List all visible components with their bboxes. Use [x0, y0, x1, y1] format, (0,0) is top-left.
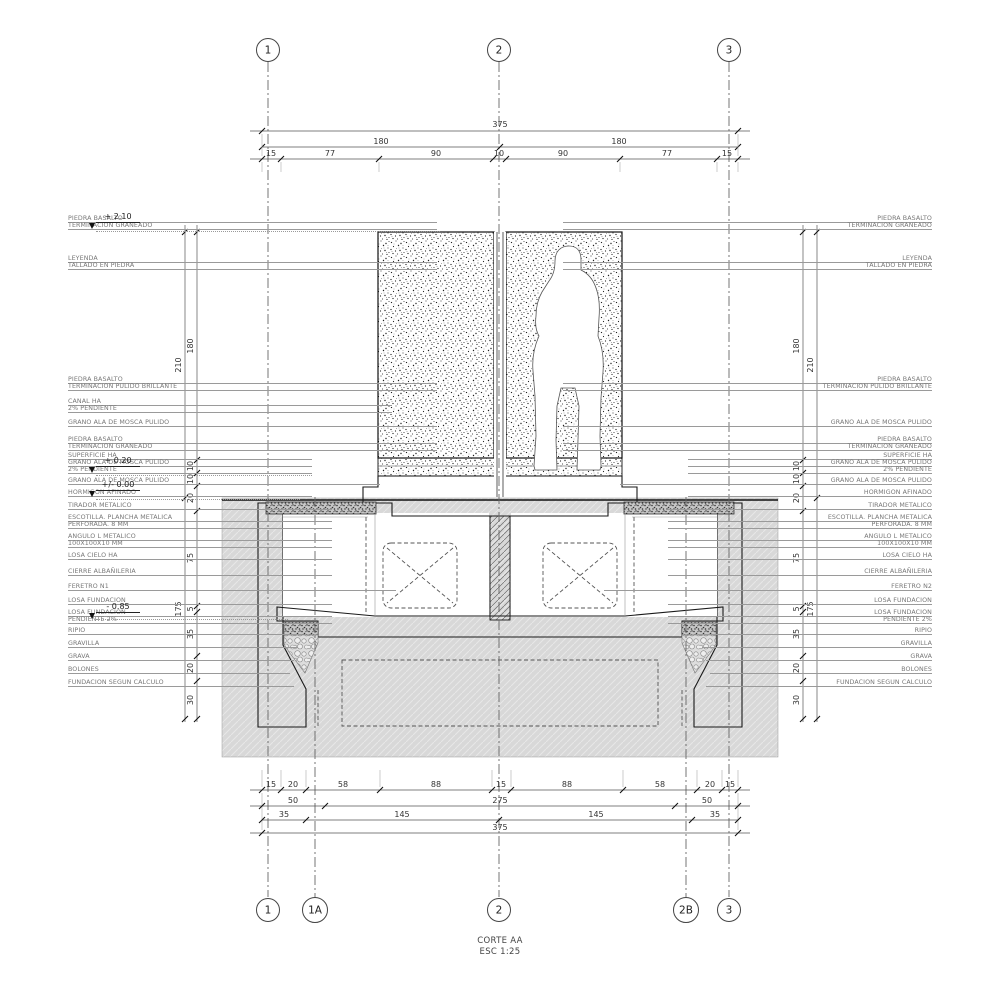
svg-text:15: 15 [722, 149, 732, 158]
grid-bubble-bottom-2B: 2B [674, 898, 699, 923]
material-label: 100X100X10 MM [668, 540, 932, 548]
svg-text:1A: 1A [308, 905, 323, 917]
material-label: FERETRO N1 [68, 583, 396, 591]
material-label: LOSA FUNDACION [668, 597, 932, 605]
svg-text:88: 88 [562, 780, 572, 789]
elevation-leader [96, 470, 312, 476]
material-label: TERMINACION PULIDO BRILLANTE [68, 383, 437, 391]
grid-bubble-bottom-3: 3 [718, 899, 741, 922]
svg-text:CORTE AA: CORTE AA [477, 936, 522, 946]
material-label: GRANO ALA DE MOSCA PULIDO [563, 419, 932, 427]
material-label: PERFORADA. 8 MM [68, 521, 332, 529]
svg-text:30: 30 [186, 695, 195, 705]
material-label: RIPIO [68, 627, 302, 635]
elevation-label: + 0.20 [96, 456, 140, 467]
svg-text:88: 88 [431, 780, 441, 789]
svg-text:275: 275 [492, 796, 507, 805]
material-label: PENDIENTE 2% [668, 616, 932, 624]
material-label: CIERRE ALBAÑILERIA [68, 568, 332, 576]
material-label: TERMINACION PULIDO BRILLANTE [563, 383, 932, 391]
grid-bubble-top-3: 3 [718, 39, 741, 62]
elevation-marker-icon [89, 467, 95, 473]
material-label: TIRADOR METALICO [68, 502, 332, 510]
material-label: TERMINACION GRANEADO [563, 443, 932, 451]
material-label: TERMINACION GRANEADO [563, 222, 932, 230]
elevation-marker-icon [89, 223, 95, 229]
material-label: TERMINACION GRANEADO [68, 443, 437, 451]
svg-text:145: 145 [588, 810, 603, 819]
material-label: FUNDACION SEGUN CALCULO [706, 679, 932, 687]
svg-text:2: 2 [496, 45, 503, 57]
svg-text:180: 180 [611, 137, 626, 146]
svg-text:15: 15 [496, 780, 506, 789]
svg-text:3: 3 [726, 45, 733, 57]
material-label: FERETRO N2 [604, 583, 932, 591]
elevation-leader [96, 614, 288, 620]
svg-text:35: 35 [279, 810, 289, 819]
svg-text:77: 77 [662, 149, 672, 158]
material-label: LOSA CIELO HA [68, 552, 332, 560]
material-label: 2% PENDIENTE [688, 466, 932, 474]
svg-text:180: 180 [186, 338, 195, 353]
svg-text:15: 15 [266, 149, 276, 158]
elevation-leader [96, 226, 440, 232]
svg-text:3: 3 [726, 905, 733, 917]
grid-bubble-top-1: 1 [257, 39, 280, 62]
dimension-top: 375 180 180 15 77 90 10 90 77 15 [250, 120, 750, 172]
svg-text:15: 15 [725, 780, 735, 789]
svg-text:180: 180 [792, 338, 801, 353]
svg-text:20: 20 [705, 780, 715, 789]
material-label: GRAVA [706, 653, 932, 661]
svg-text:50: 50 [288, 796, 298, 805]
svg-text:20: 20 [288, 780, 298, 789]
material-label: HORMIGON AFINADO [688, 489, 932, 497]
section-drawing-svg: 375 180 180 15 77 90 10 90 77 15 15 20 5… [0, 0, 1000, 1000]
elevation-marker-icon [89, 613, 95, 619]
svg-text:180: 180 [373, 137, 388, 146]
svg-text:58: 58 [338, 780, 348, 789]
svg-text:90: 90 [431, 149, 441, 158]
elevation-label: + 2.10 [96, 212, 140, 223]
architectural-section-sheet: 375 180 180 15 77 90 10 90 77 15 15 20 5… [0, 0, 1000, 1000]
svg-text:375: 375 [492, 823, 507, 832]
svg-text:1: 1 [265, 45, 272, 57]
elevation-leader [96, 494, 300, 500]
material-label: GRANO ALA DE MOSCA PULIDO [68, 419, 437, 427]
svg-text:2: 2 [496, 905, 503, 917]
svg-text:1: 1 [265, 905, 272, 917]
svg-text:15: 15 [266, 780, 276, 789]
elevation-marker-icon [89, 491, 95, 497]
svg-text:2B: 2B [679, 905, 693, 917]
material-label: GRANO ALA DE MOSCA PULIDO [620, 477, 932, 485]
material-label: CIERRE ALBAÑILERIA [668, 568, 932, 576]
svg-text:35: 35 [710, 810, 720, 819]
material-label: 100X100X10 MM [68, 540, 332, 548]
material-label: PERFORADA. 8 MM [668, 521, 932, 529]
material-label: 2% PENDIENTE [68, 405, 392, 413]
material-label: GRAVILLA [68, 640, 298, 648]
svg-text:210: 210 [174, 357, 183, 372]
svg-text:30: 30 [792, 695, 801, 705]
svg-text:90: 90 [558, 149, 568, 158]
svg-text:10: 10 [494, 149, 504, 158]
material-label: LOSA CIELO HA [668, 552, 932, 560]
svg-text:ESC 1:25: ESC 1:25 [480, 947, 521, 957]
drawing-title: CORTE AA ESC 1:25 [477, 936, 522, 957]
material-label: GRAVILLA [702, 640, 932, 648]
svg-text:210: 210 [806, 357, 815, 372]
svg-text:77: 77 [325, 149, 335, 158]
center-stem [490, 516, 510, 620]
material-label: TALLADO EN PIEDRA [68, 262, 437, 270]
material-label: BOLONES [68, 666, 290, 674]
svg-text:375: 375 [492, 120, 507, 129]
elevation-label: +/- 0.00 [96, 480, 140, 491]
svg-text:58: 58 [655, 780, 665, 789]
grid-bubble-bottom-1A: 1A [303, 898, 328, 923]
material-label: TALLADO EN PIEDRA [563, 262, 932, 270]
grid-bubble-top-2: 2 [488, 39, 511, 62]
material-label: GRAVA [68, 653, 294, 661]
material-label: FUNDACION SEGUN CALCULO [68, 679, 294, 687]
grid-bubble-bottom-2: 2 [488, 899, 511, 922]
material-label: TIRADOR METALICO [668, 502, 932, 510]
grid-bubble-bottom-1: 1 [257, 899, 280, 922]
monolith-joint-slot [494, 232, 506, 497]
elevation-label: - 0.85 [96, 602, 140, 613]
svg-text:50: 50 [702, 796, 712, 805]
dimension-bottom: 15 20 58 88 15 88 58 20 15 50 275 50 35 … [250, 770, 750, 836]
material-label: BOLONES [710, 666, 932, 674]
svg-text:145: 145 [394, 810, 409, 819]
material-label: RIPIO [698, 627, 932, 635]
